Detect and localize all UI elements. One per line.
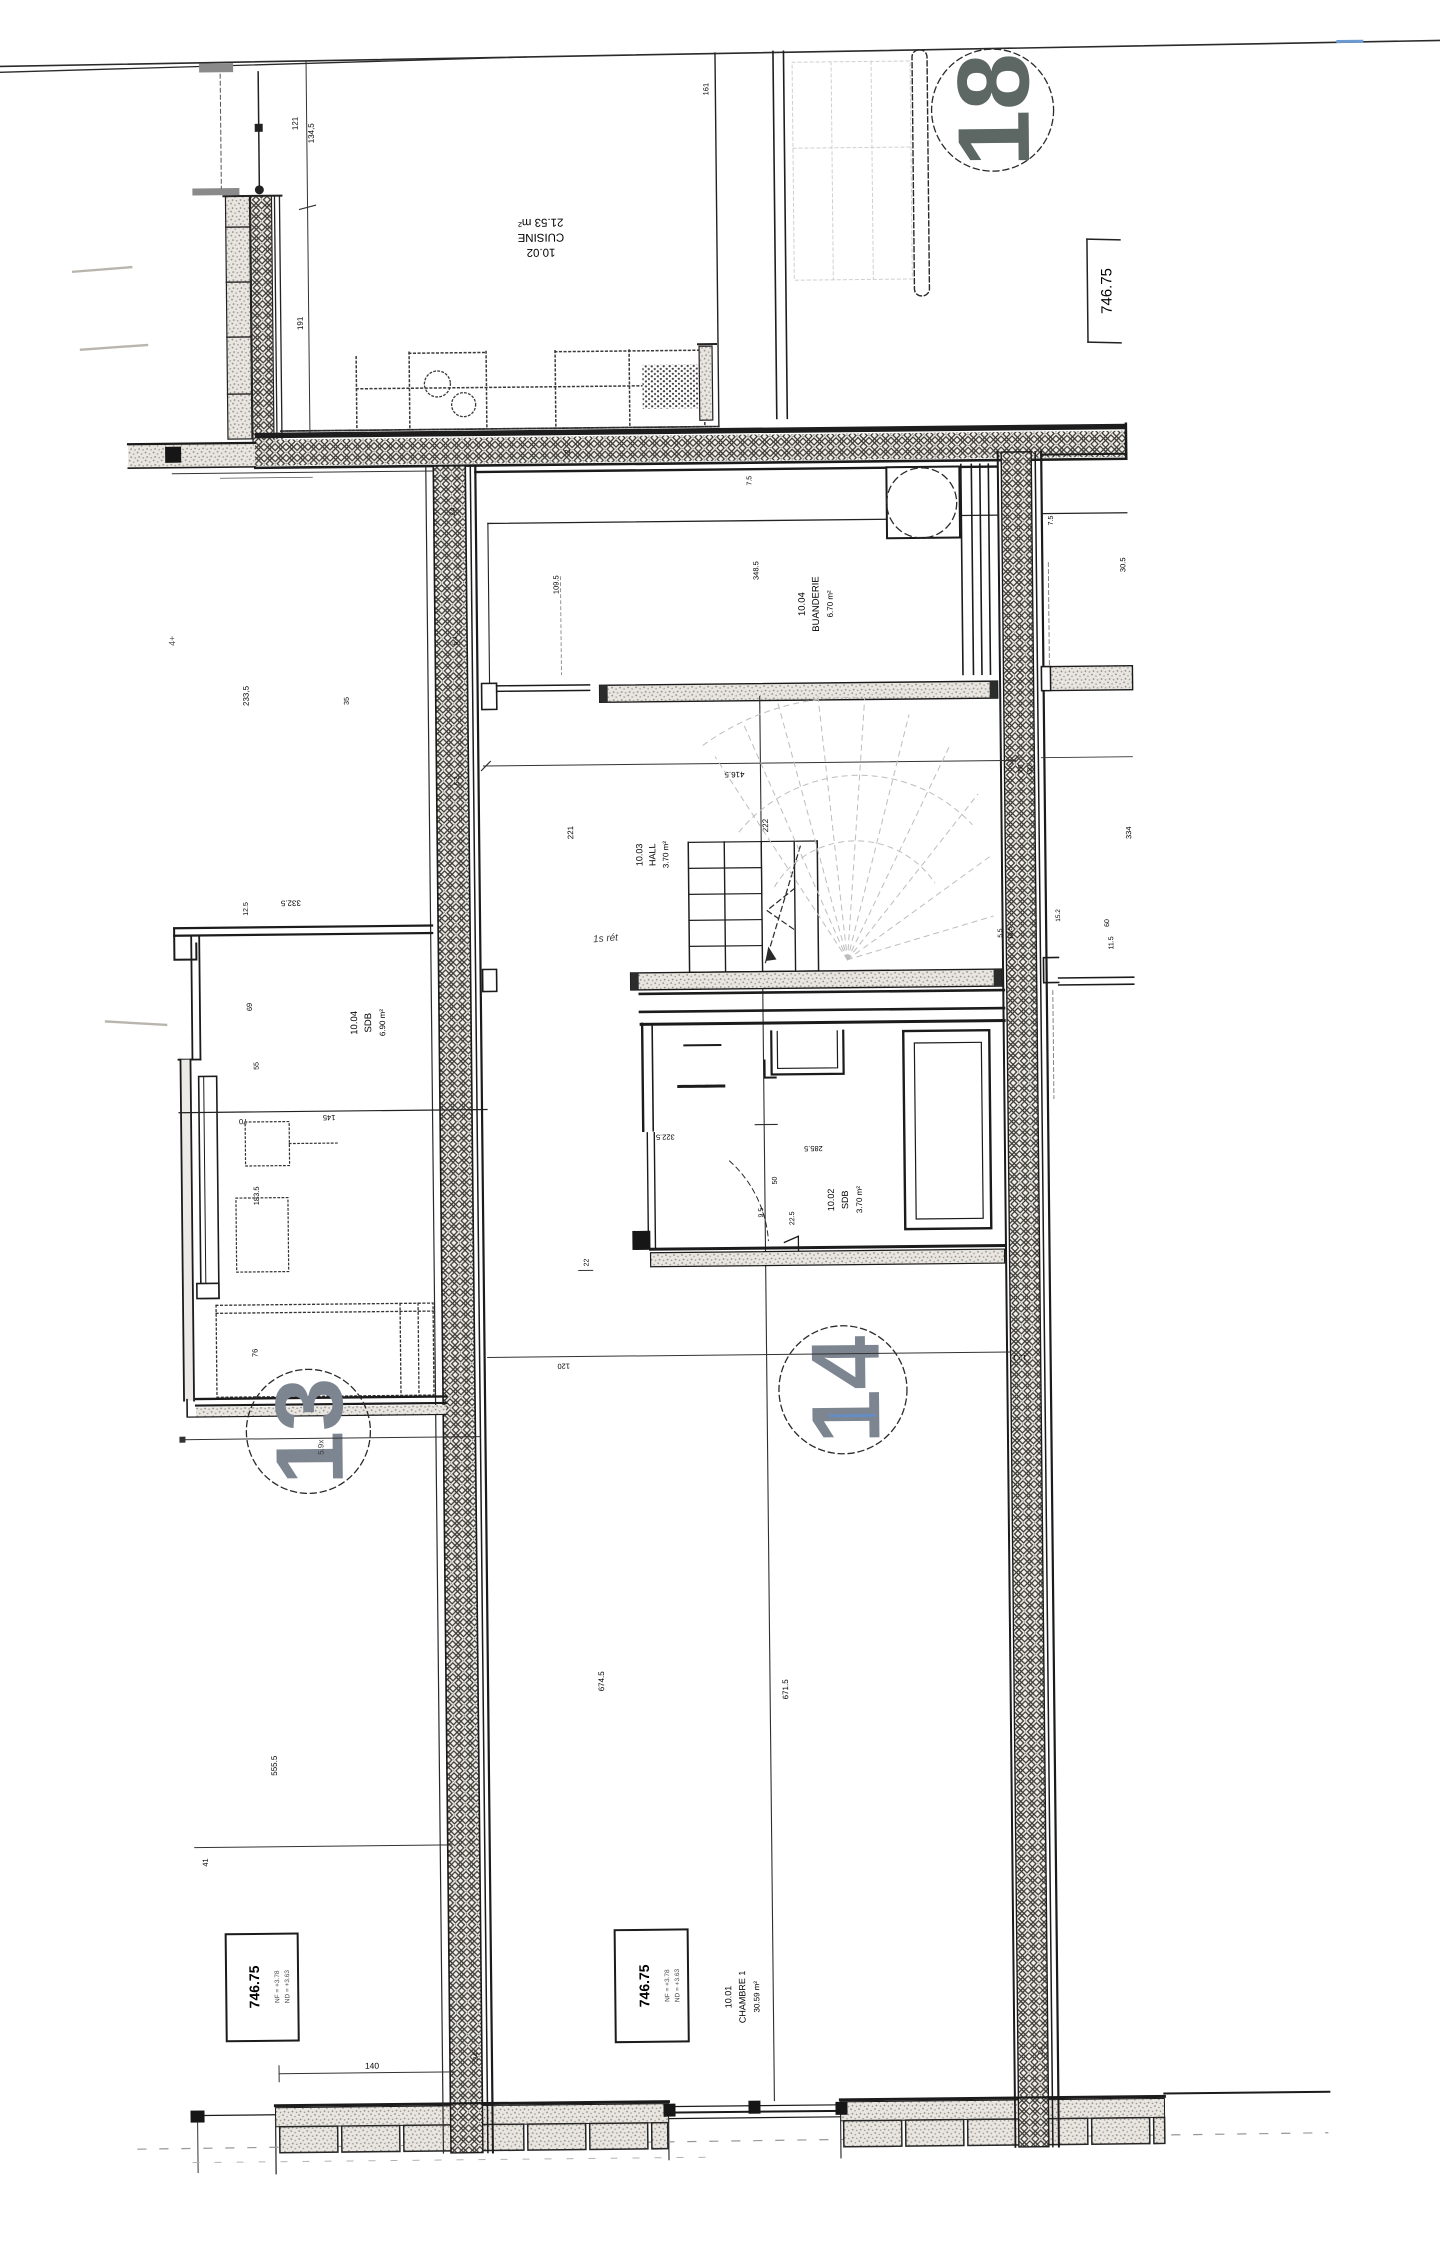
svg-text:7.5: 7.5 [1048, 516, 1055, 526]
svg-text:1s rét: 1s rét [593, 932, 620, 945]
svg-text:191: 191 [296, 316, 305, 330]
svg-text:674.5: 674.5 [597, 1671, 606, 1692]
svg-text:5.9x: 5.9x [316, 1440, 325, 1455]
svg-text:11.5: 11.5 [1108, 936, 1115, 949]
svg-text:3.70 m²: 3.70 m² [855, 1186, 864, 1214]
svg-text:233,5: 233,5 [242, 685, 251, 706]
svg-text:285.5: 285.5 [804, 1144, 823, 1153]
svg-text:14: 14 [790, 1335, 900, 1444]
svg-text:7.5: 7.5 [746, 476, 753, 486]
svg-text:10.02: 10.02 [826, 1189, 836, 1212]
svg-text:76: 76 [251, 1349, 260, 1357]
svg-text:24: 24 [448, 508, 457, 516]
svg-text:ND = +3.63: ND = +3.63 [284, 1970, 291, 2004]
svg-text:183.5: 183.5 [252, 1186, 261, 1205]
svg-text:7.5: 7.5 [1017, 764, 1024, 773]
svg-text:CHAMBRE 1: CHAMBRE 1 [737, 1971, 748, 2024]
svg-text:5.4: 5.4 [452, 636, 459, 645]
svg-text:CUISINE: CUISINE [517, 231, 564, 243]
svg-text:4+: 4+ [167, 636, 177, 646]
svg-text:22.5: 22.5 [789, 1211, 796, 1225]
svg-text:50: 50 [772, 1176, 779, 1184]
svg-text:21.53 m²: 21.53 m² [518, 216, 564, 228]
svg-text:9.5: 9.5 [758, 1208, 765, 1218]
svg-text:30.5: 30.5 [1118, 557, 1127, 572]
svg-text:24: 24 [1038, 2047, 1045, 2055]
svg-text:746.75: 746.75 [1098, 268, 1115, 314]
svg-text:12.5: 12.5 [1007, 926, 1014, 939]
svg-text:12.5: 12.5 [243, 902, 250, 916]
svg-text:12.5: 12.5 [1026, 762, 1033, 775]
svg-text:10.03: 10.03 [634, 844, 644, 867]
svg-text:NF = +3.78: NF = +3.78 [274, 1970, 281, 2003]
svg-text:746.75: 746.75 [246, 1965, 262, 2008]
svg-text:322.5: 322.5 [656, 1133, 675, 1142]
svg-text:671.5: 671.5 [781, 1679, 790, 1700]
svg-text:6.70 m²: 6.70 m² [826, 590, 835, 618]
svg-text:ND = +3.63: ND = +3.63 [674, 1968, 681, 2002]
svg-text:555.5: 555.5 [270, 1755, 279, 1776]
svg-text:221: 221 [566, 825, 575, 839]
svg-text:10.04: 10.04 [349, 1011, 360, 1035]
svg-text:55: 55 [254, 1062, 261, 1070]
svg-text:332.5: 332.5 [280, 898, 301, 907]
svg-text:334: 334 [1124, 826, 1133, 839]
svg-text:SDB: SDB [840, 1190, 850, 1209]
svg-text:3.70 m²: 3.70 m² [661, 841, 670, 869]
svg-text:4: 4 [939, 1070, 949, 1075]
svg-text:10.02: 10.02 [527, 246, 556, 258]
svg-text:60: 60 [1104, 919, 1111, 927]
svg-text:145: 145 [323, 1113, 336, 1122]
svg-text:69: 69 [245, 1003, 254, 1011]
svg-text:24: 24 [473, 2053, 480, 2061]
svg-text:BUANDERIE: BUANDERIE [810, 576, 822, 632]
svg-text:10.01: 10.01 [723, 1986, 733, 2009]
svg-text:NF = +3.78: NF = +3.78 [664, 1969, 671, 2002]
svg-text:30.59 m²: 30.59 m² [752, 1981, 761, 2013]
svg-text:41: 41 [201, 1858, 210, 1866]
svg-text:121: 121 [291, 116, 300, 130]
svg-text:109.5: 109.5 [551, 575, 560, 594]
svg-text:18: 18 [936, 53, 1051, 168]
svg-text:140: 140 [365, 2061, 380, 2071]
svg-text:10.04: 10.04 [797, 592, 808, 616]
svg-text:161: 161 [701, 83, 710, 96]
svg-text:13: 13 [256, 1377, 364, 1485]
svg-text:5.2: 5.2 [454, 776, 461, 785]
svg-text:6.90 m²: 6.90 m² [378, 1009, 387, 1037]
svg-text:2: 2 [563, 449, 572, 454]
svg-text:35: 35 [344, 697, 351, 705]
svg-text:15.2: 15.2 [1055, 909, 1062, 922]
svg-text:HALL: HALL [647, 843, 657, 866]
svg-text:746.75: 746.75 [636, 1964, 652, 2007]
svg-text:348.5: 348.5 [751, 561, 760, 580]
svg-text:134,5: 134,5 [307, 123, 316, 144]
svg-text:222: 222 [761, 818, 770, 832]
svg-text:120: 120 [557, 1362, 570, 1371]
svg-text:22: 22 [584, 1258, 591, 1266]
svg-text:SDB: SDB [363, 1013, 374, 1033]
svg-text:12.1: 12.1 [1013, 1353, 1027, 1360]
svg-text:5.5: 5.5 [997, 928, 1004, 937]
